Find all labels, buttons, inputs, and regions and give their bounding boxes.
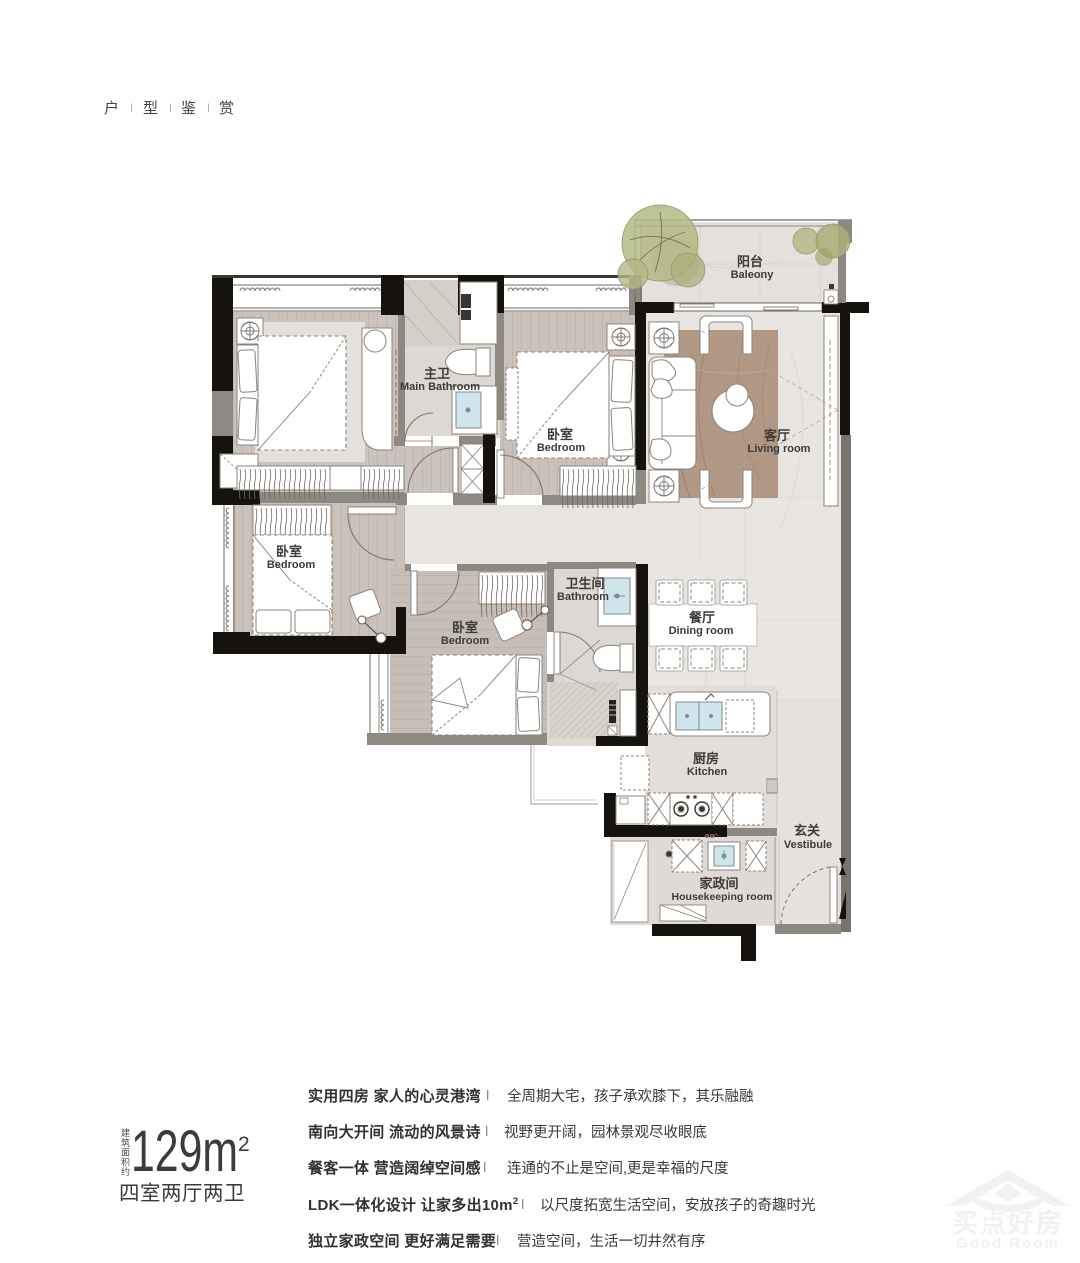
svg-text:户: 户 — [104, 100, 119, 117]
svg-text:以尺度拓宽生活空间，安放孩子的奇趣时光: 以尺度拓宽生活空间，安放孩子的奇趣时光 — [540, 1197, 816, 1214]
svg-text:全周期大宅，孩子承欢膝下，其乐融融: 全周期大宅，孩子承欢膝下，其乐融融 — [507, 1087, 754, 1105]
svg-text:Main Bathroom: Main Bathroom — [400, 381, 480, 393]
svg-text:实用四房 家人的心灵港湾: 实用四房 家人的心灵港湾 — [308, 1087, 481, 1105]
svg-text:鉴: 鉴 — [181, 100, 196, 117]
svg-text:Dining room: Dining room — [669, 625, 734, 637]
svg-text:连通的不止是空间,更是幸福的尺度: 连通的不止是空间,更是幸福的尺度 — [507, 1160, 729, 1177]
svg-text:玄关: 玄关 — [794, 823, 820, 838]
svg-text:卧室: 卧室 — [452, 620, 478, 635]
svg-text:餐厅: 餐厅 — [688, 610, 715, 625]
svg-text:南向大开间 流动的风景诗: 南向大开间 流动的风景诗 — [308, 1123, 481, 1141]
svg-text:卫生间: 卫生间 — [565, 576, 604, 591]
svg-text:Bedroom: Bedroom — [267, 559, 316, 571]
svg-text:卧室: 卧室 — [547, 427, 573, 442]
svg-text:2: 2 — [238, 1133, 250, 1156]
svg-text:视野更开阔，园林景观尽收眼底: 视野更开阔，园林景观尽收眼底 — [504, 1124, 707, 1141]
svg-text:Bedroom: Bedroom — [441, 635, 490, 647]
svg-text:厨房: 厨房 — [693, 751, 719, 766]
svg-text:主卫: 主卫 — [424, 366, 450, 381]
svg-text:Bedroom: Bedroom — [537, 442, 586, 454]
svg-text:Kitchen: Kitchen — [687, 766, 728, 778]
svg-text:型: 型 — [143, 100, 158, 117]
svg-text:卧室: 卧室 — [276, 544, 302, 559]
svg-text:丨: 丨 — [204, 103, 213, 113]
svg-text:买点好房: 买点好房 — [952, 1208, 1064, 1238]
svg-text:Vestibule: Vestibule — [784, 839, 832, 851]
svg-text:LDK一体化设计 让家多出10m2: LDK一体化设计 让家多出10m2 — [308, 1196, 518, 1214]
svg-text:Housekeeping room: Housekeeping room — [672, 891, 773, 903]
svg-text:建筑面积约: 建筑面积约 — [121, 1127, 130, 1177]
svg-text:Bathroom: Bathroom — [557, 591, 609, 603]
svg-text:丨: 丨 — [166, 103, 175, 113]
svg-text:阳台: 阳台 — [737, 254, 763, 269]
svg-text:Baleony: Baleony — [731, 269, 775, 281]
svg-text:独立家政空间 更好满足需要: 独立家政空间 更好满足需要 — [308, 1232, 496, 1250]
svg-text:餐客一体 营造阔绰空间感: 餐客一体 营造阔绰空间感 — [308, 1159, 481, 1177]
svg-text:客厅: 客厅 — [764, 428, 790, 443]
svg-text:家政间: 家政间 — [699, 876, 738, 891]
svg-text:赏: 赏 — [219, 100, 234, 117]
svg-text:营造空间，生活一切井然有序: 营造空间，生活一切井然有序 — [517, 1233, 706, 1250]
svg-text:四室两厅两卫: 四室两厅两卫 — [119, 1182, 245, 1205]
svg-text:丨: 丨 — [127, 103, 136, 113]
svg-text:Living room: Living room — [748, 443, 811, 455]
svg-text:Good Room: Good Room — [956, 1235, 1060, 1252]
svg-text:129m: 129m — [131, 1119, 238, 1184]
